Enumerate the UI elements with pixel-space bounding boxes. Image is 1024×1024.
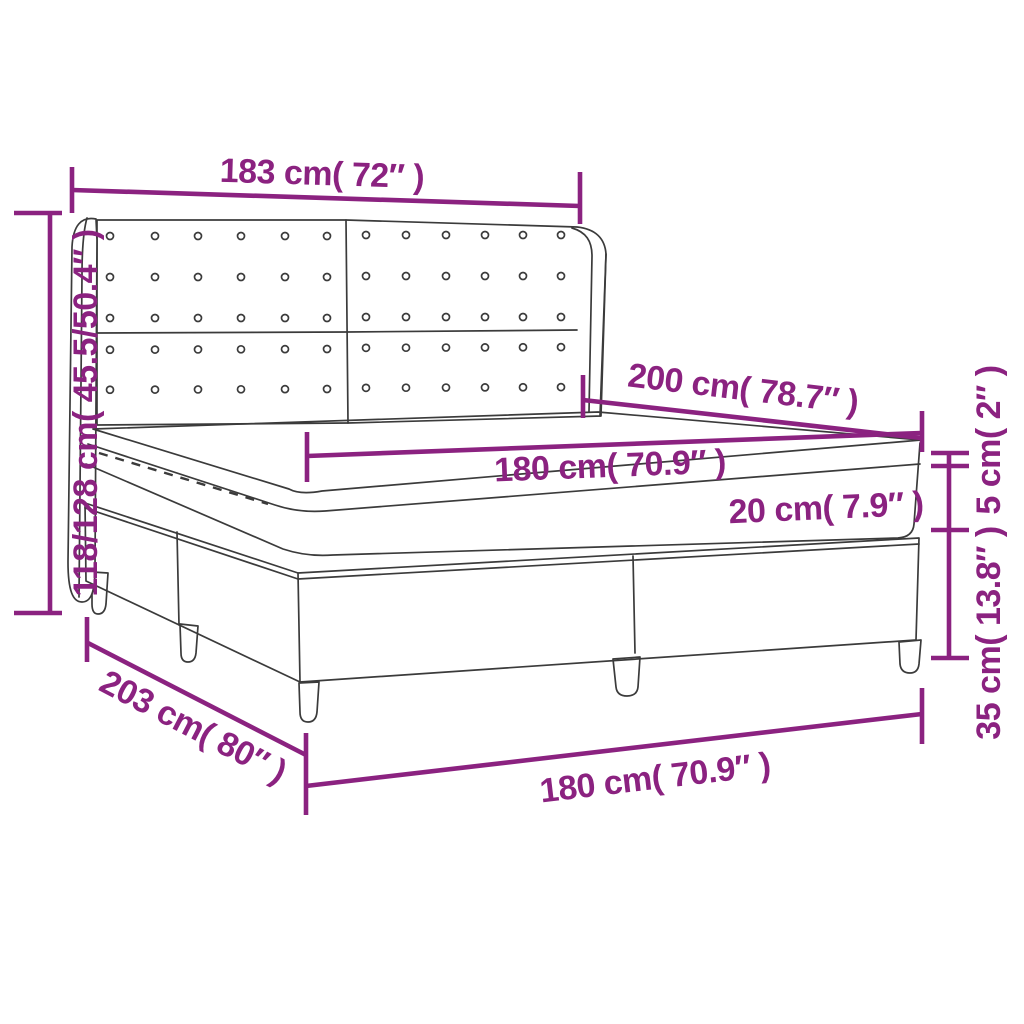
headboard-button: [363, 232, 370, 239]
dim-right-heights: 5 cm( 2″ ) 35 cm( 13.8″ ): [931, 365, 1008, 739]
headboard-button: [152, 274, 159, 281]
headboard-center-seam: [346, 220, 348, 423]
headboard-button: [443, 344, 450, 351]
diagram-canvas: 183 cm( 72″ ) 118/128 cm( 45.5/50.4″ ) 2…: [0, 0, 1024, 1024]
box-spring-base: [85, 503, 919, 682]
dim-base-depth-label: 203 cm( 80″ ): [94, 663, 293, 791]
headboard-button: [324, 274, 331, 281]
headboard-button: [443, 273, 450, 280]
headboard-button: [520, 344, 527, 351]
headboard-button: [520, 384, 527, 391]
bed-leg-front-right: [899, 640, 921, 673]
headboard-button: [363, 344, 370, 351]
headboard-button: [363, 314, 370, 321]
headboard-horizontal-seam: [97, 330, 577, 333]
headboard-button: [482, 232, 489, 239]
dim-mattress-height-label: 20 cm( 7.9″ ): [728, 485, 924, 531]
headboard-button: [195, 315, 202, 322]
base-front-face: [298, 538, 919, 682]
headboard-button: [324, 233, 331, 240]
headboard-button: [558, 384, 565, 391]
headboard-button: [558, 273, 565, 280]
base-left-face-piping: [85, 508, 298, 579]
headboard-button: [520, 273, 527, 280]
headboard-button: [107, 274, 114, 281]
headboard-button: [403, 273, 410, 280]
dim-topper-height-label: 5 cm( 2″ ): [970, 365, 1008, 514]
headboard-button: [443, 232, 450, 239]
headboard-button: [107, 346, 114, 353]
bed-leg-front-mid: [613, 657, 640, 696]
headboard-button: [282, 274, 289, 281]
headboard-button: [195, 233, 202, 240]
headboard-button: [107, 315, 114, 322]
headboard-button: [363, 384, 370, 391]
headboard-button: [238, 274, 245, 281]
headboard-button: [520, 232, 527, 239]
headboard-button: [282, 386, 289, 393]
headboard-button: [443, 314, 450, 321]
dim-total-height-label: 118/128 cm( 45.5/50.4″ ): [67, 229, 105, 596]
headboard-button: [282, 315, 289, 322]
headboard-button: [238, 233, 245, 240]
headboard-button: [238, 315, 245, 322]
dim-total-height: 118/128 cm( 45.5/50.4″ ): [14, 213, 105, 613]
dim-mattress-width: 180 cm( 70.9″ ): [307, 432, 921, 489]
headboard-button: [482, 273, 489, 280]
headboard-button: [558, 314, 565, 321]
headboard-button: [238, 386, 245, 393]
dim-mattress-height: 20 cm( 7.9″ ): [728, 485, 924, 531]
bed-dimension-diagram: 183 cm( 72″ ) 118/128 cm( 45.5/50.4″ ) 2…: [0, 0, 1024, 1024]
headboard-button: [107, 386, 114, 393]
headboard-button: [152, 346, 159, 353]
headboard-button: [195, 346, 202, 353]
headboard: [68, 218, 606, 602]
headboard-button: [324, 346, 331, 353]
headboard-button: [482, 384, 489, 391]
headboard-button: [403, 384, 410, 391]
headboard-button: [282, 346, 289, 353]
headboard-button: [324, 315, 331, 322]
dim-depth-label: 200 cm( 78.7″ ): [626, 356, 861, 421]
dim-headboard-width: 183 cm( 72″ ): [72, 152, 580, 224]
headboard-button: [282, 233, 289, 240]
headboard-button: [558, 344, 565, 351]
base-front-face-seam: [633, 556, 635, 653]
headboard-right-wing-edge: [600, 254, 606, 416]
headboard-button: [482, 314, 489, 321]
base-left-face: [85, 503, 300, 682]
headboard-buttons: [107, 232, 565, 394]
bed-leg-front-left: [299, 682, 319, 722]
mattress-topper-stitching: [99, 453, 268, 504]
dimension-annotations: 183 cm( 72″ ) 118/128 cm( 45.5/50.4″ ) 2…: [14, 152, 1008, 815]
headboard-button: [195, 274, 202, 281]
headboard-button: [152, 315, 159, 322]
dim-base-height-label: 35 cm( 13.8″ ): [970, 526, 1008, 739]
headboard-button: [403, 344, 410, 351]
dim-base-width: 180 cm( 70.9″ ): [306, 688, 922, 810]
headboard-button: [558, 232, 565, 239]
headboard-button: [443, 384, 450, 391]
base-left-face-seam: [177, 532, 179, 625]
headboard-button: [152, 386, 159, 393]
dim-headboard-width-label: 183 cm( 72″ ): [219, 152, 425, 196]
headboard-button: [482, 344, 489, 351]
headboard-button: [107, 233, 114, 240]
headboard-button: [403, 314, 410, 321]
headboard-button: [363, 273, 370, 280]
headboard-panel-outline: [97, 220, 606, 425]
base-front-face-piping: [298, 544, 919, 579]
headboard-button: [195, 386, 202, 393]
headboard-button: [324, 386, 331, 393]
headboard-button: [520, 314, 527, 321]
headboard-button: [152, 233, 159, 240]
headboard-button: [403, 232, 410, 239]
headboard-button: [238, 346, 245, 353]
bed-legs: [180, 624, 921, 722]
